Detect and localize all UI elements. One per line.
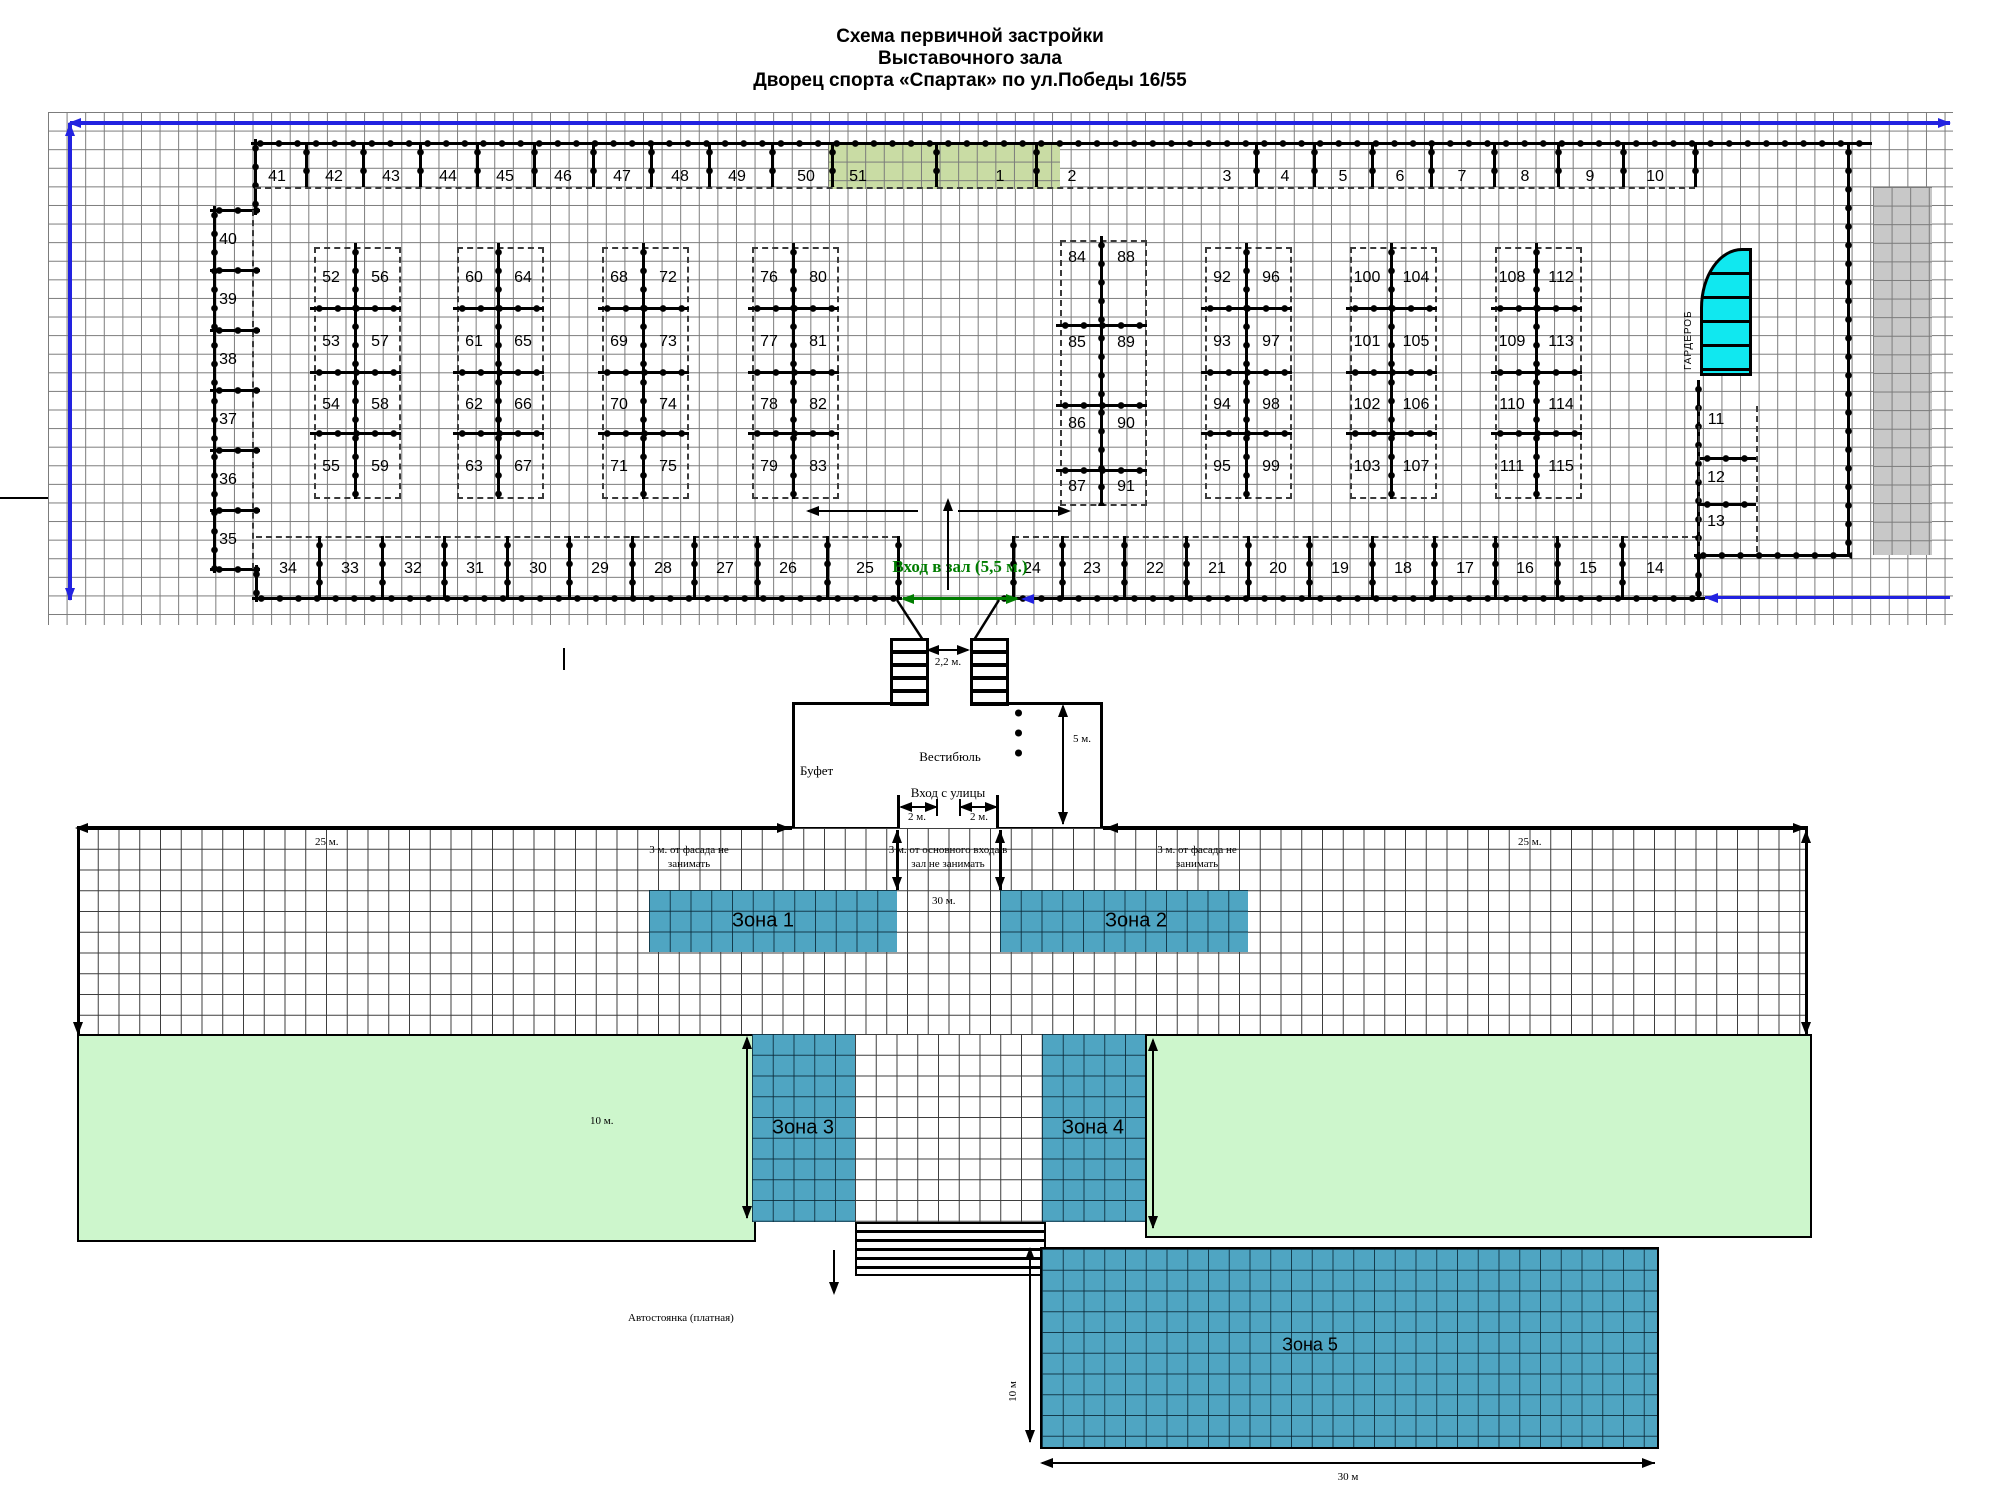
booth-43: 43 (382, 167, 400, 187)
dim-25m-right-label: 25 м. (1518, 836, 1541, 849)
island-divider (1491, 304, 1582, 313)
booth-47: 47 (613, 167, 631, 187)
center-aisle-grid (855, 1034, 1042, 1222)
booth-divider (823, 536, 832, 598)
vestibule-wall-left (792, 702, 795, 830)
arrow-icon (1148, 1216, 1158, 1229)
booth-32: 32 (404, 559, 422, 579)
booth-109: 109 (1499, 332, 1526, 352)
booth-84: 84 (1068, 248, 1086, 268)
booth-34: 34 (279, 559, 297, 579)
arrow-icon (1058, 704, 1068, 717)
island-divider (1201, 368, 1292, 377)
left-edge-tick (0, 497, 48, 499)
booth-divider (440, 536, 449, 598)
booth-103: 103 (1354, 457, 1381, 477)
booth-12: 12 (1707, 468, 1725, 488)
booth-59: 59 (371, 457, 389, 477)
booth-87: 87 (1068, 477, 1086, 497)
booth-14: 14 (1646, 559, 1664, 579)
island-divider (453, 368, 544, 377)
booth-divider (1244, 536, 1253, 598)
booth-divider (1553, 536, 1562, 598)
arrow-icon (1058, 506, 1071, 516)
dashed-line (1756, 406, 1758, 552)
hall-left-corner-wall (251, 139, 260, 215)
hall-bottom-wall-right (995, 594, 1705, 603)
zone-4-label: Зона 4 (1062, 1117, 1124, 1140)
keepout-left-text: 3 м. от фасада не занимать (649, 843, 729, 871)
dim-2m-left-label: 2 м. (908, 810, 926, 824)
booth-divider (647, 143, 656, 187)
lawn-right (1145, 1034, 1812, 1238)
arrow-icon (1642, 1458, 1655, 1468)
booth-94: 94 (1213, 395, 1231, 415)
booth-29: 29 (591, 559, 609, 579)
booth-19: 19 (1331, 559, 1349, 579)
booth-106: 106 (1403, 395, 1430, 415)
booth-divider (1698, 454, 1756, 463)
booth-41: 41 (268, 167, 286, 187)
blue-line-top (70, 121, 1950, 125)
booth-93: 93 (1213, 332, 1231, 352)
booth-99: 99 (1262, 457, 1280, 477)
booth-112: 112 (1548, 268, 1574, 288)
booth-91: 91 (1117, 477, 1135, 497)
booth-divider (378, 536, 387, 598)
booth-30: 30 (529, 559, 547, 579)
island-divider (748, 368, 839, 377)
booth-46: 46 (554, 167, 572, 187)
booth-80: 80 (809, 268, 827, 288)
arrow-icon (742, 1036, 752, 1049)
booth-divider (1554, 143, 1563, 187)
booth-105: 105 (1403, 332, 1430, 352)
booth-divider (705, 143, 714, 187)
outdoor-border-top-right (1103, 826, 1808, 830)
booth-divider (1490, 143, 1499, 187)
island-divider (1201, 429, 1292, 438)
keepout-left-line2: занимать (649, 857, 729, 871)
booth-88: 88 (1117, 248, 1135, 268)
zone-3-label: Зона 3 (772, 1117, 834, 1140)
zone-5 (1040, 1247, 1659, 1449)
booth-61: 61 (465, 332, 483, 352)
door-jamb (996, 795, 999, 830)
zone-5-label: Зона 5 (1282, 1335, 1338, 1356)
booth-divider (1368, 536, 1377, 598)
dim-25m-left-label: 25 м. (315, 836, 338, 849)
booth-82: 82 (809, 395, 827, 415)
dashed-line (256, 536, 898, 538)
vestibule-label: Вестибюль (919, 750, 981, 764)
right-structure-wall (1694, 551, 1852, 560)
booth-89: 89 (1117, 333, 1135, 353)
booth-22: 22 (1146, 559, 1164, 579)
page-title-line2: Выставочного зала (470, 48, 1470, 70)
booth-3: 3 (1223, 167, 1232, 187)
arrow-icon (1025, 1247, 1035, 1260)
dim-5m-label: 5 м. (1073, 733, 1091, 746)
keepout-right-text: 3 м. от фасада не занимать (1157, 843, 1237, 871)
island-divider (453, 304, 544, 313)
booth-10: 10 (1646, 167, 1664, 187)
arrow-icon (742, 1206, 752, 1219)
booth-113: 113 (1548, 332, 1574, 352)
dim-10m-right-arrow (1152, 1040, 1154, 1228)
island-divider (748, 429, 839, 438)
arrow-icon (1025, 1430, 1035, 1443)
island-divider (310, 429, 401, 438)
keepout-right-line1: 3 м. от фасада не (1157, 843, 1237, 857)
keepout-left-line1: 3 м. от фасада не (649, 843, 729, 857)
arrow-icon (925, 802, 938, 812)
booth-divider (1252, 143, 1261, 187)
booth-66: 66 (514, 395, 532, 415)
buffet-label: Буфет (800, 764, 833, 777)
booth-54: 54 (322, 395, 340, 415)
booth-6: 6 (1396, 167, 1405, 187)
booth-divider (828, 143, 837, 187)
door-jamb (897, 795, 900, 830)
booth-20: 20 (1269, 559, 1287, 579)
arrow-icon (892, 830, 902, 843)
booth-11: 11 (1708, 410, 1725, 430)
booth-divider (359, 143, 368, 187)
lawn-left (77, 1034, 756, 1242)
booth-divider (210, 446, 260, 455)
booth-48: 48 (671, 167, 689, 187)
booth-44: 44 (439, 167, 457, 187)
arrow-icon (65, 588, 75, 601)
booth-divider (210, 506, 260, 515)
booth-83: 83 (809, 457, 827, 477)
booth-76: 76 (760, 268, 778, 288)
booth-26: 26 (779, 559, 797, 579)
crosswalk (855, 1222, 1046, 1276)
zone5-width-arrow (1042, 1462, 1655, 1464)
island-divider (598, 304, 689, 313)
booth-57: 57 (371, 332, 389, 352)
booth-97: 97 (1262, 332, 1280, 352)
booth-7: 7 (1458, 167, 1467, 187)
booth-divider (1182, 536, 1191, 598)
booth-divider (210, 386, 260, 395)
zone5-height-arrow (1029, 1250, 1031, 1442)
booth-divider (302, 143, 311, 187)
booth-1: 1 (996, 167, 1005, 187)
island-divider (1056, 401, 1147, 410)
booth-90: 90 (1117, 414, 1135, 434)
dim-5m-arrow (1062, 706, 1064, 824)
island-divider (598, 368, 689, 377)
booth-divider (768, 143, 777, 187)
booth-divider (210, 266, 260, 275)
island-divider (1491, 429, 1582, 438)
dashed-line (1698, 406, 1700, 552)
booth-40: 40 (219, 230, 237, 250)
booth-85: 85 (1068, 333, 1086, 353)
booth-divider (1058, 536, 1067, 598)
island-divider (1491, 368, 1582, 377)
booth-4: 4 (1281, 167, 1290, 187)
island-divider (748, 304, 839, 313)
booth-100: 100 (1354, 268, 1381, 288)
booth-16: 16 (1516, 559, 1534, 579)
booth-67: 67 (514, 457, 532, 477)
booth-27: 27 (716, 559, 734, 579)
dashed-line (255, 187, 1695, 189)
booth-64: 64 (514, 268, 532, 288)
booth-divider (1618, 536, 1627, 598)
island-divider (453, 429, 544, 438)
blue-line-left (68, 123, 72, 600)
booth-58: 58 (371, 395, 389, 415)
island-divider (1346, 304, 1437, 313)
booth-23: 23 (1083, 559, 1101, 579)
island-divider (1346, 368, 1437, 377)
booth-divider (416, 143, 425, 187)
arrow-icon (1148, 1038, 1158, 1051)
arrow-icon (943, 498, 953, 511)
vestibule-wall-top-left (792, 702, 893, 705)
outdoor-border-left (77, 828, 80, 1035)
island-divider (598, 429, 689, 438)
booth-111: 111 (1500, 457, 1524, 477)
booth-38: 38 (219, 350, 237, 370)
zone-1-label: Зона 1 (732, 910, 794, 933)
booth-divider (503, 536, 512, 598)
vestibule-wall-right (1100, 702, 1103, 830)
booth-42: 42 (325, 167, 343, 187)
booth-51: 51 (849, 167, 867, 187)
booth-18: 18 (1394, 559, 1412, 579)
staircase-right (970, 638, 1009, 706)
booth-114: 114 (1548, 395, 1574, 415)
arrow-icon (1040, 1458, 1053, 1468)
booth-5: 5 (1339, 167, 1348, 187)
island-divider (310, 368, 401, 377)
arrow-icon (995, 877, 1005, 890)
dashed-line (1013, 536, 1698, 538)
booth-72: 72 (659, 268, 677, 288)
dim-30m-center-label: 30 м. (932, 895, 955, 908)
booth-divider (565, 536, 574, 598)
booth-divider (1120, 536, 1129, 598)
keepout-center-line1: 3 м. от основного входа в (889, 843, 1008, 857)
island-divider (1346, 429, 1437, 438)
small-tick (563, 648, 565, 670)
keepout-center-text: 3 м. от основного входа в зал не занимат… (889, 843, 1008, 871)
island-divider (1201, 304, 1292, 313)
staircase-left (890, 638, 929, 706)
keepout-center-line2: зал не занимать (889, 857, 1008, 871)
interior-arrow-up (947, 508, 949, 590)
booth-divider (932, 143, 941, 187)
street-entrance-label: Вход с улицы (911, 786, 986, 800)
booth-28: 28 (654, 559, 672, 579)
stair-gap-label: 2,2 м. (935, 655, 961, 669)
booth-divider (589, 143, 598, 187)
page-title-line1: Схема первичной застройки (470, 26, 1470, 48)
arrow-icon (1801, 830, 1811, 843)
booth-9: 9 (1586, 167, 1595, 187)
arrow-icon (892, 877, 902, 890)
booth-75: 75 (659, 457, 677, 477)
booth-81: 81 (809, 332, 827, 352)
booth-56: 56 (371, 268, 389, 288)
booth-divider (530, 143, 539, 187)
booth-31: 31 (466, 559, 484, 579)
booth-108: 108 (1499, 268, 1526, 288)
booth-71: 71 (610, 457, 628, 477)
booth-divider (628, 536, 637, 598)
booth-49: 49 (728, 167, 746, 187)
floor-plan: Схема первичной застройки Выставочного з… (0, 0, 2000, 1511)
island-divider (1056, 466, 1147, 475)
booth-2: 2 (1068, 167, 1077, 187)
booth-divider (690, 536, 699, 598)
utility-gray-block (1873, 187, 1932, 555)
booth-13: 13 (1707, 512, 1725, 532)
zone-2-label: Зона 2 (1105, 910, 1167, 933)
booth-79: 79 (760, 457, 778, 477)
booth-115: 115 (1548, 457, 1574, 477)
island-divider (310, 304, 401, 313)
interior-arrow-left (808, 510, 918, 512)
blue-line-bottom-right (1705, 596, 1950, 599)
arrow-icon (1705, 593, 1718, 603)
arrow-icon (995, 830, 1005, 843)
arrow-icon (829, 1282, 839, 1295)
zone5-height-label: 10 м (1007, 1381, 1020, 1402)
booth-104: 104 (1403, 268, 1430, 288)
booth-37: 37 (219, 410, 237, 430)
booth-divider (1619, 143, 1628, 187)
booth-86: 86 (1068, 414, 1086, 434)
outdoor-border-right (1805, 828, 1808, 1035)
hall-entrance-label: Вход в зал (5,5 м.) (892, 557, 1027, 577)
interior-arrow-right (958, 510, 1060, 512)
booth-divider (1698, 500, 1756, 509)
booth-8: 8 (1521, 167, 1530, 187)
booth-55: 55 (322, 457, 340, 477)
dim-2m-right-label: 2 м. (970, 810, 988, 824)
booth-divider (1310, 143, 1319, 187)
booth-divider (210, 326, 260, 335)
booth-divider (1305, 536, 1314, 598)
booth-107: 107 (1403, 457, 1430, 477)
hall-top-wall (251, 139, 1872, 148)
zone5-width-label: 30 м (1338, 1470, 1359, 1484)
keepout-right-line2: занимать (1157, 857, 1237, 871)
booth-63: 63 (465, 457, 483, 477)
arrow-icon (65, 123, 75, 136)
right-structure-wall (1844, 143, 1853, 557)
booth-45: 45 (496, 167, 514, 187)
booth-21: 21 (1208, 559, 1226, 579)
booth-36: 36 (219, 470, 237, 490)
booth-74: 74 (659, 395, 677, 415)
arrow-icon (926, 645, 939, 655)
page-title-line3: Дворец спорта «Спартак» по ул.Победы 16/… (470, 70, 1470, 92)
arrow-icon (777, 823, 790, 833)
booth-52: 52 (322, 268, 340, 288)
booth-68: 68 (610, 268, 628, 288)
booth-69: 69 (610, 332, 628, 352)
dim-10m-left-label: 10 м. (590, 1115, 613, 1128)
booth-78: 78 (760, 395, 778, 415)
cloakroom-label: ГАРДЕРОБ (1683, 250, 1694, 370)
booth-70: 70 (610, 395, 628, 415)
booth-98: 98 (1262, 395, 1280, 415)
pedestrian-arrow-down (833, 1250, 835, 1286)
outdoor-border-top-left (77, 826, 792, 830)
booth-divider (1491, 536, 1500, 598)
booth-53: 53 (322, 332, 340, 352)
booth-95: 95 (1213, 457, 1231, 477)
booth-15: 15 (1579, 559, 1597, 579)
dim-10m-left-arrow (746, 1038, 748, 1218)
booth-divider (1032, 143, 1041, 187)
booth-92: 92 (1213, 268, 1231, 288)
hall-bottom-wall-left (252, 594, 902, 603)
booth-25: 25 (856, 559, 874, 579)
column-dots (1015, 703, 1022, 769)
booth-33: 33 (341, 559, 359, 579)
booth-101: 101 (1354, 332, 1381, 352)
booth-77: 77 (760, 332, 778, 352)
arrow-icon (1938, 118, 1951, 128)
booth-60: 60 (465, 268, 483, 288)
booth-73: 73 (659, 332, 677, 352)
booth-divider (473, 143, 482, 187)
arrow-icon (957, 645, 970, 655)
parking-label: Автостоянка (платная) (628, 1312, 734, 1325)
booth-102: 102 (1354, 395, 1381, 415)
booth-divider (1427, 143, 1436, 187)
booth-96: 96 (1262, 268, 1280, 288)
island-divider (1056, 321, 1147, 330)
booth-65: 65 (514, 332, 532, 352)
arrow-icon (806, 506, 819, 516)
booth-50: 50 (797, 167, 815, 187)
booth-divider (315, 536, 324, 598)
arrow-icon (1105, 823, 1118, 833)
booth-35: 35 (219, 530, 237, 550)
booth-divider (1368, 143, 1377, 187)
arrow-icon (1058, 812, 1068, 825)
booth-divider (1430, 536, 1439, 598)
booth-17: 17 (1456, 559, 1474, 579)
booth-divider (1691, 143, 1700, 187)
booth-110: 110 (1499, 395, 1525, 415)
booth-39: 39 (219, 290, 237, 310)
booth-62: 62 (465, 395, 483, 415)
booth-divider (753, 536, 762, 598)
